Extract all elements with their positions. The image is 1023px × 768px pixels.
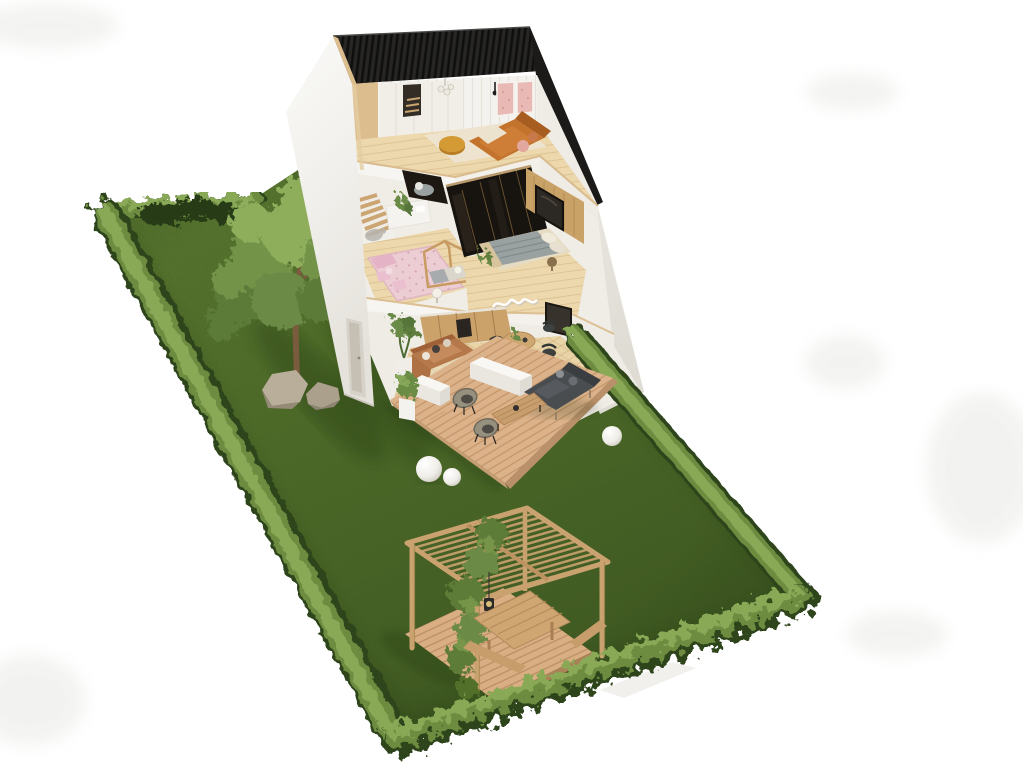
- sphere-lamp-3: [602, 426, 622, 446]
- attic-pouf: [439, 136, 465, 155]
- blush-pillow: [517, 140, 529, 152]
- table-plant: [511, 330, 521, 340]
- sphere-lamp-2: [443, 468, 461, 486]
- architectural-cutaway-render: [0, 0, 1023, 768]
- towel: [416, 205, 426, 212]
- topiary-pot: [399, 398, 415, 421]
- sphere-lamp-1: [416, 456, 442, 482]
- built-in-appliance: [456, 318, 472, 338]
- render-canvas: [0, 0, 1023, 768]
